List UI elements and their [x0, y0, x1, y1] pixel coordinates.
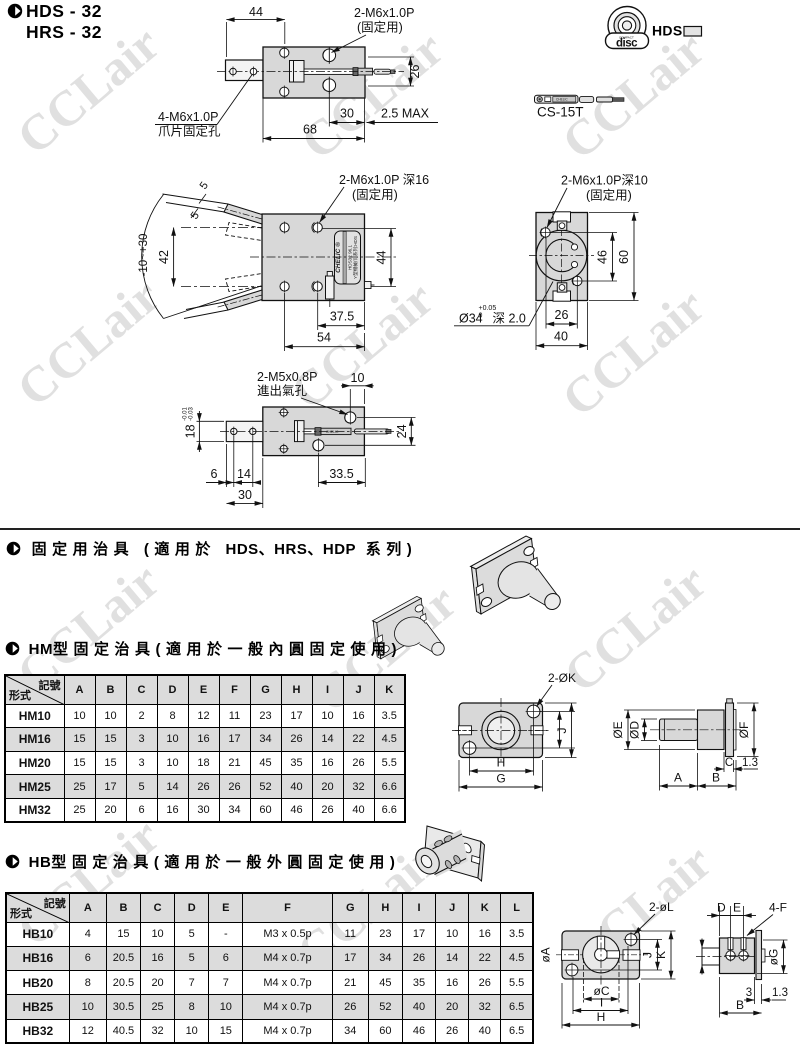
svg-text:爪片固定孔: 爪片固定孔 [158, 124, 221, 139]
svg-text:4-F: 4-F [769, 901, 787, 915]
svg-text:33.5: 33.5 [329, 467, 353, 481]
svg-text:K: K [654, 951, 668, 959]
svg-text:1.3: 1.3 [742, 757, 758, 769]
svg-text:(固定用): (固定用) [352, 187, 398, 202]
svg-text:68: 68 [303, 123, 317, 137]
svg-text:2-M6x1.0P 深16: 2-M6x1.0P 深16 [339, 173, 429, 187]
svg-text:CHELIC: CHELIC [556, 98, 568, 102]
svg-text:6: 6 [211, 467, 218, 481]
svg-text:CHELIC: CHELIC [326, 430, 339, 434]
svg-text:J: J [641, 952, 655, 958]
svg-text:G: G [496, 772, 505, 786]
svg-text:H: H [597, 1010, 606, 1024]
svg-text:CS-15T: CS-15T [537, 105, 584, 120]
svg-text:2-øL: 2-øL [649, 900, 674, 914]
svg-text:14: 14 [237, 467, 251, 481]
svg-text:(固定用): (固定用) [586, 188, 632, 203]
svg-text:40: 40 [554, 330, 568, 344]
svg-text:øA: øA [539, 947, 553, 962]
svg-text:A: A [674, 771, 682, 785]
svg-text:4-M6x1.0P: 4-M6x1.0P [158, 110, 218, 124]
svg-text:24: 24 [395, 424, 409, 438]
svg-text:0: 0 [479, 313, 483, 320]
svg-text:3: 3 [746, 987, 752, 999]
svg-text:Y型機械爪 系列:HDS: Y型機械爪 系列:HDS [352, 236, 359, 279]
svg-text:B: B [736, 998, 744, 1012]
svg-text:2-ØK: 2-ØK [548, 671, 576, 685]
svg-text:2-M6x1.0P深10: 2-M6x1.0P深10 [561, 174, 648, 188]
svg-text:26: 26 [555, 308, 569, 322]
svg-text:42: 42 [157, 250, 171, 264]
svg-text:2-M5x0.8P: 2-M5x0.8P [257, 370, 317, 384]
svg-text:37.5: 37.5 [330, 310, 354, 324]
svg-text:I: I [600, 996, 603, 1010]
svg-text:ØD: ØD [628, 721, 642, 739]
svg-text:1.3: 1.3 [772, 987, 788, 999]
svg-text:深 2.0: 深 2.0 [493, 312, 526, 326]
svg-text:18: 18 [184, 424, 198, 438]
svg-text:-0.03: -0.03 [189, 407, 195, 421]
svg-text:ØF: ØF [737, 722, 751, 739]
svg-text:5: 5 [198, 180, 211, 192]
svg-text:H: H [497, 756, 506, 770]
svg-text:26: 26 [408, 65, 422, 79]
svg-text:D: D [717, 901, 726, 915]
svg-text:2-M6x1.0P: 2-M6x1.0P [354, 6, 414, 20]
svg-text:54: 54 [317, 331, 331, 345]
svg-text:44: 44 [375, 251, 389, 265]
svg-text:B: B [712, 771, 720, 785]
svg-text:進出氣孔: 進出氣孔 [257, 384, 308, 398]
svg-text:(固定用): (固定用) [357, 20, 403, 35]
svg-text:10: 10 [351, 371, 365, 385]
svg-text:ØE: ØE [611, 721, 625, 738]
svg-text:HDS: HDS [652, 23, 682, 39]
svg-text:J: J [555, 728, 569, 734]
svg-text:30: 30 [340, 107, 354, 121]
svg-text:30: 30 [238, 488, 252, 502]
svg-text:disc: disc [616, 38, 638, 50]
svg-text:E: E [733, 901, 741, 915]
svg-text:46: 46 [596, 250, 610, 264]
svg-text:2.5 MAX: 2.5 MAX [381, 107, 430, 121]
svg-text:øG: øG [767, 949, 781, 966]
svg-text:-10~+30: -10~+30 [138, 234, 150, 277]
svg-text:60: 60 [617, 250, 631, 264]
svg-text:C: C [725, 757, 733, 769]
svg-text:44: 44 [249, 5, 263, 19]
